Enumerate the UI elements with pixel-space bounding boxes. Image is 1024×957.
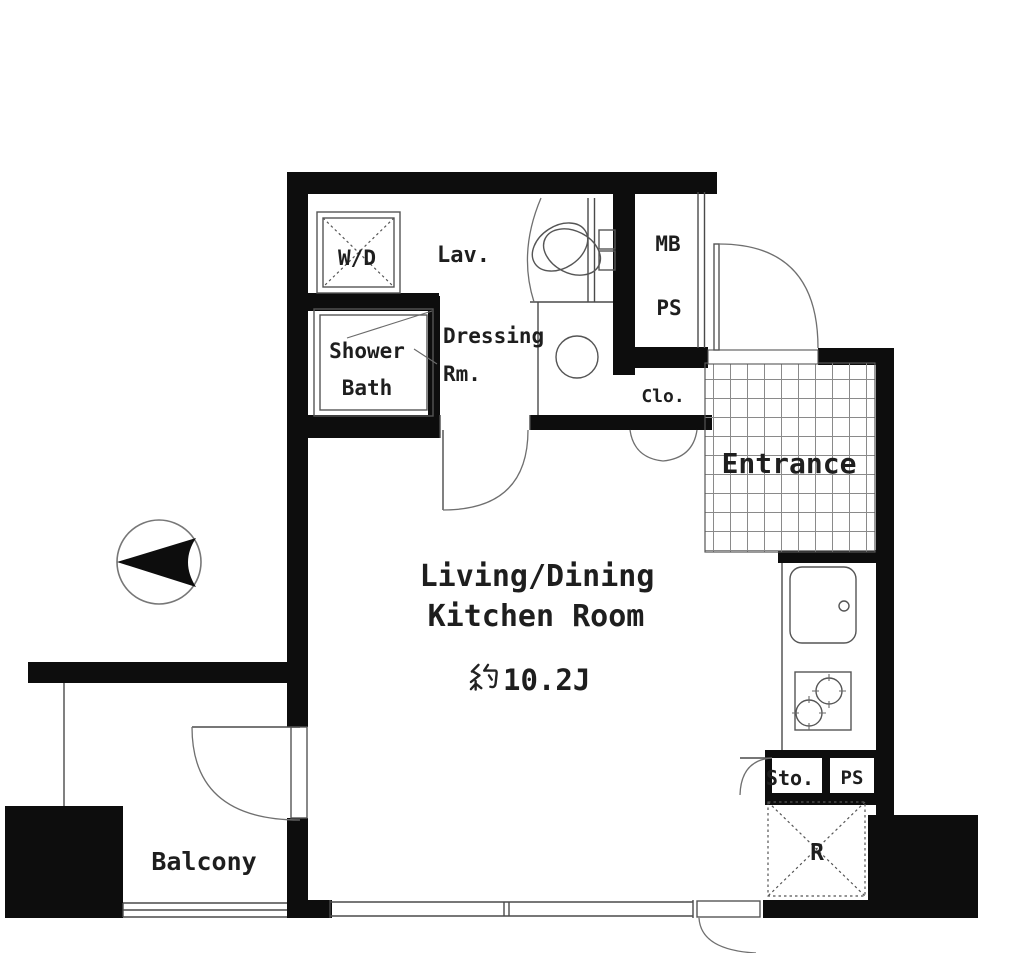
wall-balcony-block xyxy=(5,806,123,918)
room-label-storage: Sto. xyxy=(766,766,814,790)
floor-plan-drawing: W/D Lav. MB PS Shower Bath Dressing Rm. … xyxy=(0,0,1024,953)
wall-top xyxy=(287,172,717,194)
wall-bottom-right-bar xyxy=(763,900,978,918)
wall-balcony-top xyxy=(28,662,308,683)
room-label-entrance: Entrance xyxy=(722,447,857,480)
wall-left-upper xyxy=(287,172,308,727)
entrance-door-leaf xyxy=(714,244,719,350)
room-label-ldk-area-text: 10.2J xyxy=(503,663,590,697)
entrance-door-sill xyxy=(708,350,818,364)
room-label-ps-lower: PS xyxy=(841,767,864,789)
room-label-shower: Shower xyxy=(329,339,405,363)
room-label-lav: Lav. xyxy=(437,243,490,268)
wall-wd-shower-divider xyxy=(308,293,439,311)
room-label-balcony: Balcony xyxy=(151,847,256,876)
room-label-refrigerator: R xyxy=(810,840,824,866)
room-label-ldk-1: Living/Dining xyxy=(420,559,655,594)
room-label-wd: W/D xyxy=(338,246,376,270)
room-label-mb: MB xyxy=(655,232,680,256)
wall-ldk-top-left xyxy=(287,415,440,438)
room-label-ps-upper: PS xyxy=(656,296,681,320)
room-label-bath: Bath xyxy=(342,376,393,400)
wall-shower-right xyxy=(428,296,440,418)
wall-right xyxy=(876,348,894,815)
floor-plan: W/D Lav. MB PS Shower Bath Dressing Rm. … xyxy=(0,0,1024,953)
room-label-ldk-2: Kitchen Room xyxy=(428,599,645,634)
balcony-door-frame xyxy=(291,727,307,818)
wall-left-foot xyxy=(287,900,332,918)
room-label-dressing: Dressing xyxy=(443,324,544,348)
wall-shaft-bottom xyxy=(613,347,708,368)
wall-ldk-top-right xyxy=(530,415,712,430)
room-label-closet: Clo. xyxy=(641,386,684,407)
room-label-dressing-rm: Rm. xyxy=(443,362,481,386)
